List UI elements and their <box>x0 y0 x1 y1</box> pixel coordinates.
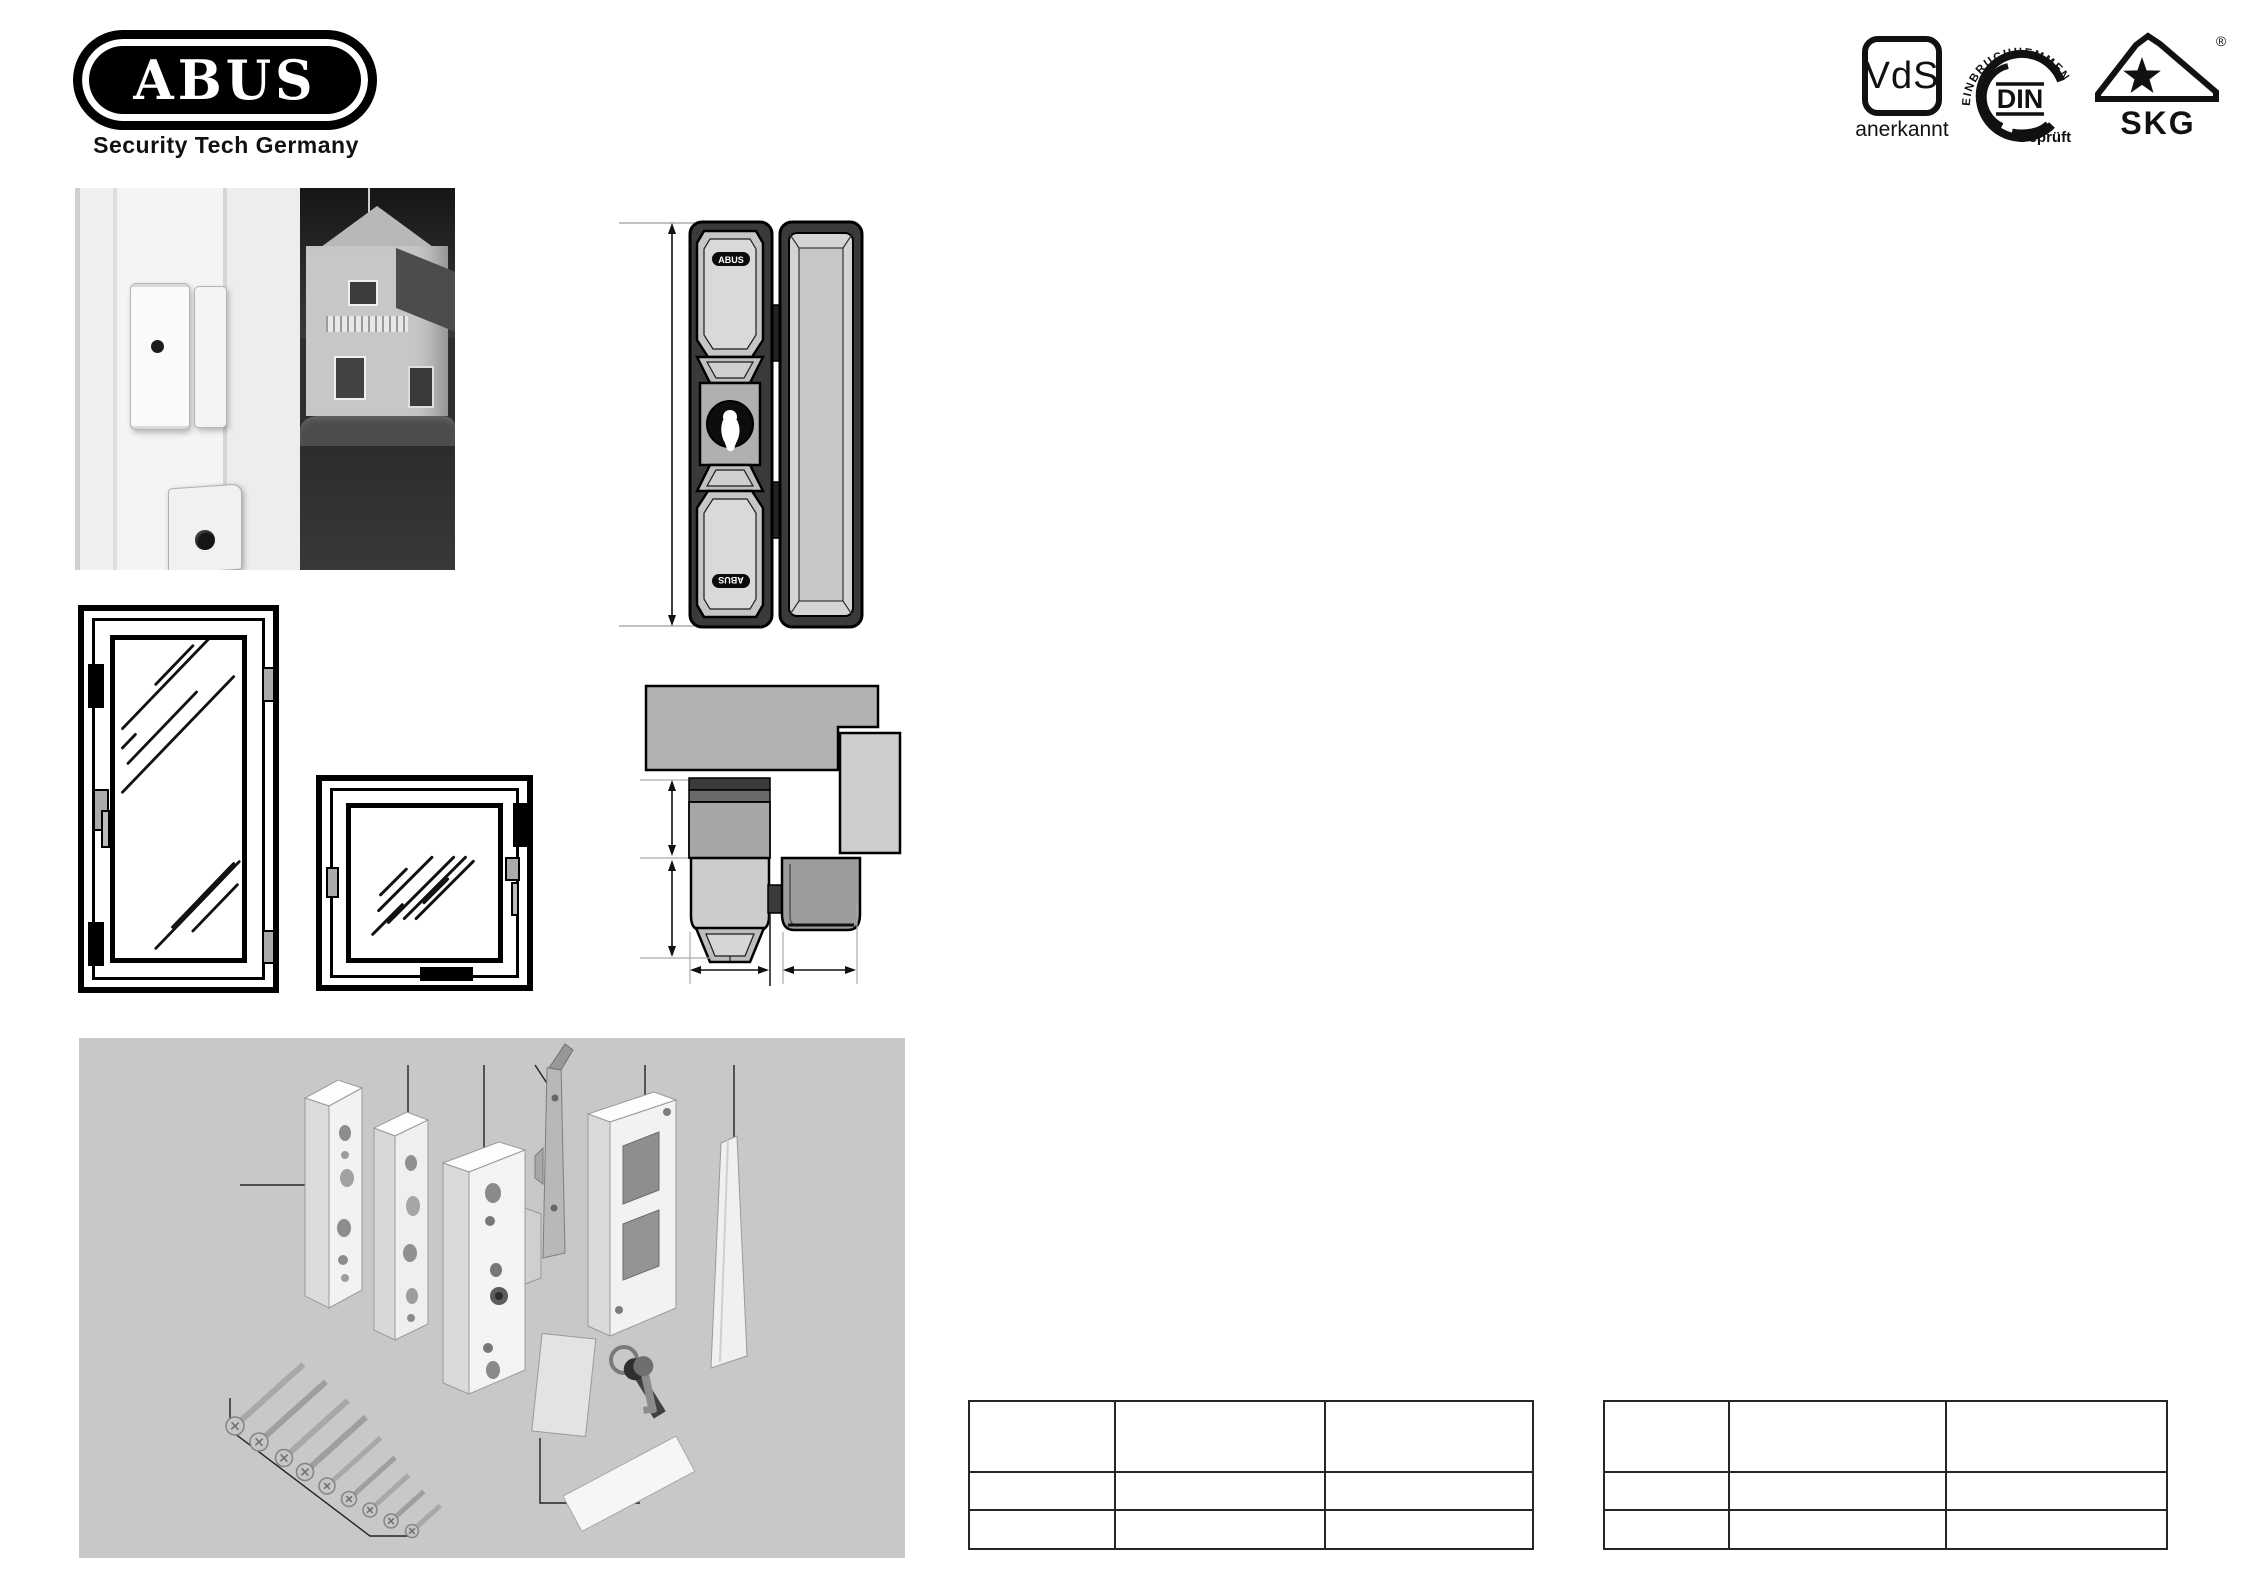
table-cell <box>1604 1472 1729 1510</box>
parts-exploded-view <box>79 1038 905 1558</box>
table-cell <box>1604 1401 1729 1472</box>
table-cell <box>1115 1472 1324 1510</box>
photo-lock-body <box>130 283 190 430</box>
skg-badge-icon: ® SKG <box>2090 28 2230 146</box>
photo-lock-strike <box>194 286 227 428</box>
front-view-drawing: ABUS ABUS <box>612 215 874 685</box>
spacer-strip-part <box>711 1136 747 1368</box>
table-row <box>969 1510 1533 1549</box>
vds-label: VdS <box>1865 55 1940 98</box>
lock-position-marker <box>513 803 529 847</box>
strike-plate-part <box>588 1092 676 1336</box>
lock-position-marker <box>88 922 104 966</box>
table-cell <box>1946 1472 2167 1510</box>
table-row <box>1604 1472 2167 1510</box>
glass-reflection-lines <box>115 640 242 958</box>
skg-label: SKG <box>2120 105 2195 141</box>
spec-table-right <box>1603 1400 2168 1550</box>
table-cell <box>1946 1401 2167 1472</box>
photo-keyhole <box>151 340 164 353</box>
keys-set <box>611 1347 672 1419</box>
window-sash <box>110 635 247 963</box>
vds-badge-icon: VdS <box>1862 36 1942 116</box>
window-diagram-tall <box>78 605 279 993</box>
table-cell <box>969 1401 1115 1472</box>
glass-reflection-lines <box>351 808 498 958</box>
handle-lock-marker <box>505 857 520 881</box>
skg-registered-mark: ® <box>2216 33 2227 49</box>
table-row <box>1604 1510 2167 1549</box>
product-photo <box>75 188 455 570</box>
handle-marker <box>101 810 110 848</box>
table-row <box>969 1472 1533 1510</box>
parts-illustration <box>79 1038 905 1558</box>
din-sublabel: Geprüft <box>2017 129 2071 146</box>
section-drawing <box>620 680 960 990</box>
table-cell <box>1115 1401 1324 1472</box>
mounting-block <box>305 1080 362 1308</box>
abus-logo-text: ABUS <box>133 48 316 112</box>
lock-brand-badge-top: ABUS <box>718 255 744 265</box>
frame-profile-light <box>840 733 900 853</box>
table-cell <box>969 1510 1115 1549</box>
table-cell <box>1729 1510 1946 1549</box>
lock-brand-badge-bottom: ABUS <box>718 575 744 585</box>
din-badge-icon: EINBRUCHHEMMEND DIN Geprüft <box>1952 22 2088 152</box>
screws-set <box>222 1358 444 1540</box>
table-cell <box>1325 1510 1533 1549</box>
photo-bushes <box>300 416 455 450</box>
photo-balcony <box>326 316 408 332</box>
din-label: DIN <box>1997 84 2044 114</box>
table-cell <box>969 1472 1115 1510</box>
table-cell <box>1604 1510 1729 1549</box>
handle-marker <box>511 882 519 916</box>
photo-window-frame <box>75 188 300 570</box>
table-cell <box>1325 1401 1533 1472</box>
table-row <box>969 1401 1533 1472</box>
lock-body-part <box>443 1142 541 1394</box>
strike-section <box>782 858 860 930</box>
table-cell <box>1946 1510 2167 1549</box>
window-sash <box>346 803 503 963</box>
window-diagram-square <box>316 775 533 991</box>
lock-position-marker <box>420 967 473 981</box>
photo-lawn <box>300 446 455 570</box>
photo-sill-lock <box>168 483 242 570</box>
photo-house-window <box>408 366 434 408</box>
hinge-marker <box>262 667 275 702</box>
hinge-marker <box>262 930 275 964</box>
spec-table-left <box>968 1400 1534 1550</box>
photo-house-window <box>334 356 366 400</box>
vds-sublabel: anerkannt <box>1842 118 1962 142</box>
photo-sill-keyhole <box>195 530 215 550</box>
photo-house-window <box>348 280 378 306</box>
brand-tagline: Security Tech Germany <box>78 132 374 159</box>
abus-logo-icon: ABUS <box>73 30 377 130</box>
table-cell <box>1729 1472 1946 1510</box>
table-row <box>1604 1401 2167 1472</box>
hinge-marker <box>326 867 339 898</box>
table-cell <box>1729 1401 1946 1472</box>
mounting-block <box>374 1112 428 1340</box>
table-cell <box>1115 1510 1324 1549</box>
datasheet-page: ABUS Security Tech Germany VdS anerkannt… <box>0 0 2246 1587</box>
lock-position-marker <box>88 664 104 708</box>
table-cell <box>1325 1472 1533 1510</box>
photo-house-scene <box>300 188 455 570</box>
